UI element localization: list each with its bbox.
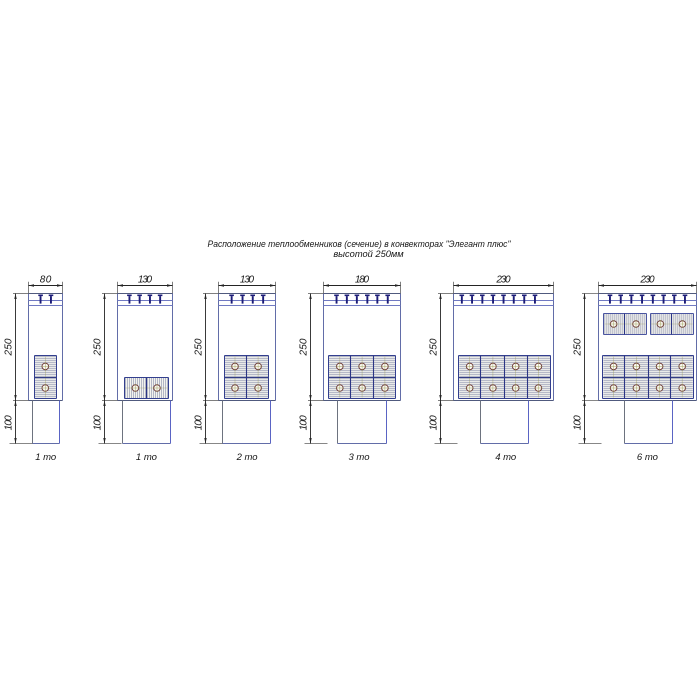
- svg-text:180: 180: [355, 274, 370, 285]
- svg-text:3 то: 3 то: [348, 452, 369, 463]
- svg-text:100: 100: [429, 415, 440, 430]
- svg-text:230: 230: [639, 274, 655, 285]
- svg-text:250: 250: [299, 338, 310, 356]
- svg-text:80: 80: [40, 274, 52, 285]
- svg-text:4 то: 4 то: [495, 452, 516, 463]
- svg-text:130: 130: [240, 274, 255, 285]
- svg-text:250: 250: [93, 338, 104, 356]
- svg-text:1 то: 1 то: [136, 452, 157, 463]
- svg-text:250: 250: [429, 338, 440, 356]
- svg-text:230: 230: [495, 274, 511, 285]
- svg-text:100: 100: [299, 415, 310, 430]
- svg-text:100: 100: [4, 415, 15, 430]
- svg-text:130: 130: [138, 274, 153, 285]
- svg-text:250: 250: [194, 338, 205, 356]
- svg-text:250: 250: [573, 338, 584, 356]
- svg-text:6 то: 6 то: [637, 452, 658, 463]
- svg-text:100: 100: [93, 415, 104, 430]
- svg-text:1 то: 1 то: [35, 452, 56, 463]
- svg-text:высотой 250мм: высотой 250мм: [333, 249, 404, 259]
- svg-text:250: 250: [4, 338, 15, 356]
- svg-text:100: 100: [194, 415, 205, 430]
- svg-text:100: 100: [573, 415, 584, 430]
- svg-text:2 то: 2 то: [236, 452, 258, 463]
- svg-text:Расположение теплообменников (: Расположение теплообменников (сечение) в…: [208, 239, 512, 249]
